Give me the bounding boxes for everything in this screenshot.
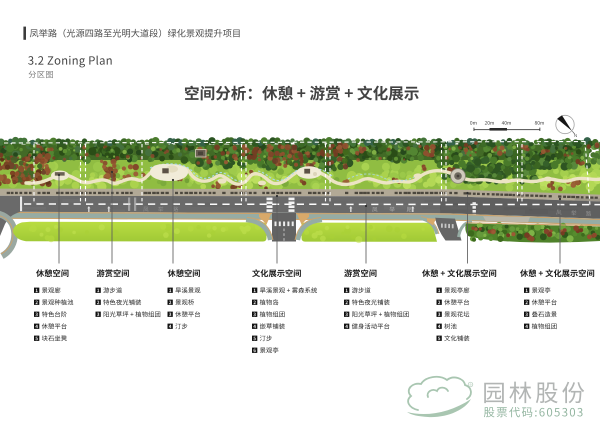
svg-text:N: N bbox=[574, 133, 577, 138]
